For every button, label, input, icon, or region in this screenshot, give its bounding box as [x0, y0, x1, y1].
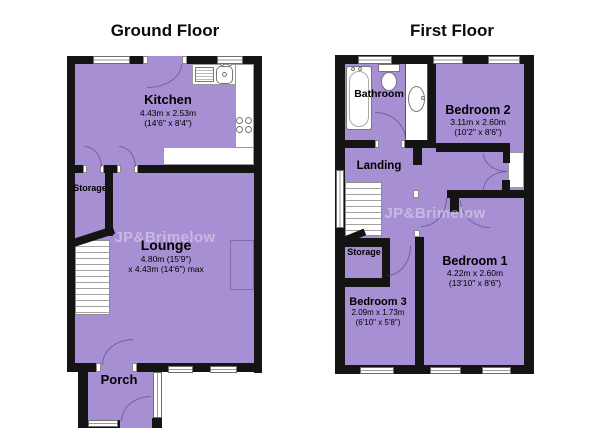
- window: [168, 366, 193, 373]
- lounge-name: Lounge: [106, 238, 226, 254]
- door-jamb: [401, 140, 405, 148]
- ff-storage-label: Storage: [339, 247, 389, 257]
- wall: [254, 56, 262, 373]
- bathroom-name: Bathroom: [344, 89, 414, 101]
- kitchen-sink-drain: [222, 72, 227, 77]
- wall: [67, 56, 75, 363]
- bedroom2-dim-metric: 3.11m x 2.60m: [428, 117, 528, 127]
- lounge-alcove: [230, 240, 254, 290]
- gf-staircase: [75, 240, 110, 315]
- window: [430, 367, 461, 374]
- window: [433, 56, 463, 64]
- porch-label: Porch: [89, 373, 149, 388]
- kitchen-dim-imperial: (14'6" x 8'4"): [110, 118, 226, 128]
- kitchen-counter-bottom: [163, 147, 254, 165]
- bedroom2-name: Bedroom 2: [428, 103, 528, 117]
- door-opening: [379, 140, 401, 148]
- window: [153, 372, 162, 418]
- bedroom3-label: Bedroom 3 2.09m x 1.73m (6'10" x 5'8"): [338, 296, 418, 328]
- window: [210, 366, 237, 373]
- door-jamb: [143, 56, 148, 64]
- window: [358, 56, 392, 64]
- basin-tap: [421, 96, 425, 100]
- door-jamb: [414, 230, 420, 237]
- built-in-cupboard: [508, 152, 524, 188]
- bedroom1-dim-imperial: (13'10" x 8'6"): [425, 278, 525, 288]
- bathroom-label: Bathroom: [344, 89, 414, 101]
- window: [336, 170, 344, 228]
- wall: [436, 143, 503, 152]
- floorplan: Ground Floor First Floor: [0, 0, 600, 436]
- ground-floor-title: Ground Floor: [85, 21, 245, 41]
- bedroom3-dim-metric: 2.09m x 1.73m: [338, 308, 418, 318]
- window: [482, 367, 511, 374]
- bedroom2-dim-imperial: (10'2" x 8'6"): [428, 127, 528, 137]
- bedroom3-dim-imperial: (6'10" x 5'8"): [338, 318, 418, 328]
- window: [88, 420, 118, 427]
- lounge-dim-line2: x 4.43m (14'6") max: [106, 264, 226, 274]
- lounge-dim-line1: 4.80m (15'9"): [106, 254, 226, 264]
- bedroom1-name: Bedroom 1: [425, 254, 525, 268]
- toilet-cistern: [378, 64, 400, 72]
- door-jamb: [182, 56, 187, 64]
- landing-label: Landing: [342, 160, 416, 173]
- first-floor-title: First Floor: [372, 21, 532, 41]
- bath-tap: [358, 67, 362, 71]
- door-jamb: [96, 363, 101, 372]
- watermark: JP&Brimelow: [365, 205, 505, 222]
- hob-burner: [245, 117, 252, 124]
- window: [488, 56, 520, 64]
- wall: [345, 140, 375, 148]
- bedroom2-label: Bedroom 2 3.11m x 2.60m (10'2" x 8'6"): [428, 103, 528, 137]
- landing-name: Landing: [342, 160, 416, 173]
- bedroom1-dim-metric: 4.22m x 2.60m: [425, 268, 525, 278]
- kitchen-name: Kitchen: [110, 93, 226, 108]
- hob-burner: [236, 126, 243, 133]
- hob-burner: [236, 117, 243, 124]
- bedroom3-name: Bedroom 3: [338, 296, 418, 308]
- wall: [78, 363, 88, 425]
- wall: [345, 278, 390, 287]
- window: [360, 367, 394, 374]
- kitchen-dim-metric: 4.43m x 2.53m: [110, 108, 226, 118]
- door-opening: [120, 420, 152, 428]
- kitchen-drainer: [195, 67, 214, 82]
- lounge-label: Lounge 4.80m (15'9") x 4.43m (14'6") max: [106, 238, 226, 274]
- ff-storage-name: Storage: [339, 247, 389, 257]
- kitchen-label: Kitchen 4.43m x 2.53m (14'6" x 8'4"): [110, 93, 226, 128]
- gf-storage-name: Storage: [65, 183, 115, 193]
- porch-name: Porch: [89, 373, 149, 388]
- hob-burner: [245, 126, 252, 133]
- window: [93, 56, 130, 64]
- door-jamb: [375, 140, 379, 148]
- wall: [152, 418, 162, 428]
- bedroom1-label: Bedroom 1 4.22m x 2.60m (13'10" x 8'6"): [425, 254, 525, 288]
- wall: [447, 190, 524, 198]
- bath-tap: [351, 67, 355, 71]
- door-opening: [148, 56, 182, 64]
- gf-storage-label: Storage: [65, 183, 115, 193]
- door-jamb: [413, 190, 419, 198]
- window: [217, 56, 243, 64]
